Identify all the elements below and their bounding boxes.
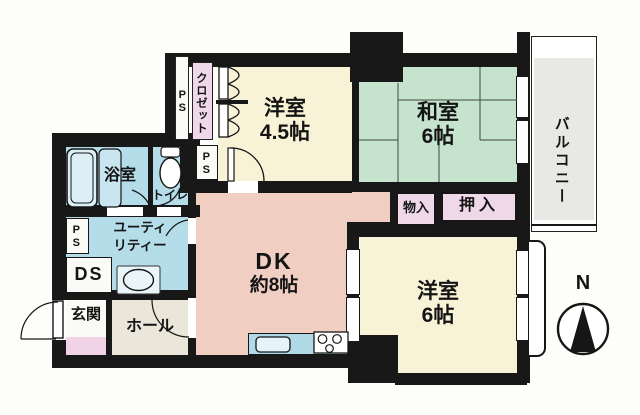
room-size: 6帖 [383,125,493,149]
label-closet: クロゼット [194,66,207,140]
room-size: 約8帖 [202,275,346,296]
toilet-icon [160,147,181,188]
label-storage: 物入 [396,201,436,216]
stove-icon [314,332,348,353]
room-name: DK [202,249,346,275]
utility-line2: リティー [98,237,182,255]
label-utility: ユーティ リティー [98,219,182,254]
fixtures-overlay [0,0,640,415]
compass-rose [558,304,608,354]
label-north: N [568,272,598,294]
washing-machine-icon [117,266,160,294]
door-arc-wr45 [228,148,264,181]
label-ps-top: PS [176,84,188,120]
label-ps-mid: PS [200,149,212,179]
label-ps-utility: PS [70,222,82,252]
room-size: 4.5帖 [230,121,340,145]
label-toilet: トイレ [150,189,190,202]
label-entrance: 玄関 [66,307,106,324]
label-western-room-4-5: 洋室 4.5帖 [230,97,340,144]
sink-icon [256,337,290,352]
room-name: 洋室 [381,280,495,304]
door-arc-entrance [21,301,63,339]
door-arc-bathroom [132,190,152,214]
label-japanese-room: 和室 6帖 [383,101,493,148]
room-name: 洋室 [230,97,340,121]
label-balcony: バルコニー [552,93,569,229]
room-size: 6帖 [381,304,495,328]
label-bathroom: 浴室 [92,167,148,185]
label-western-room-6: 洋室 6帖 [381,280,495,327]
label-duct-space: DS [66,264,112,284]
label-dining-kitchen: DK 約8帖 [202,249,346,296]
utility-line1: ユーティ [98,219,182,237]
label-hall: ホール [112,318,188,336]
label-futon-closet: 押入 [441,197,517,215]
floorplan: 洋室 4.5帖 和室 6帖 洋室 6帖 DK 約8帖 バルコニー 浴室 トイレ … [0,0,640,415]
room-name: 和室 [383,101,493,125]
